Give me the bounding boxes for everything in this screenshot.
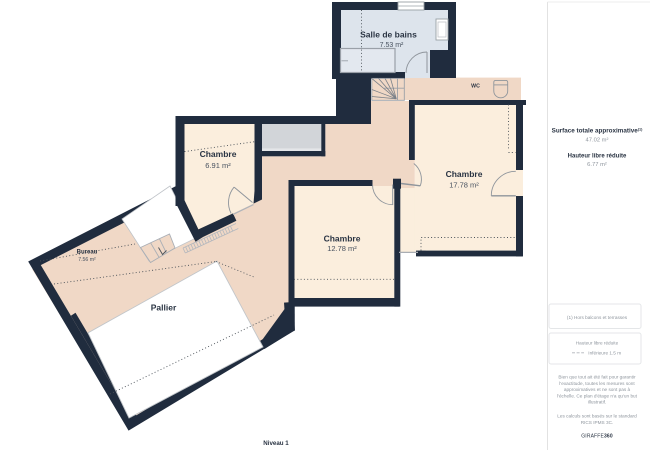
- svg-text:Bien que tout ait été fait pou: Bien que tout ait été fait pour garantir: [558, 375, 636, 380]
- svg-text:approximatives et ne sont pas: approximatives et ne sont pas à: [564, 387, 631, 392]
- svg-text:17.78 m²: 17.78 m²: [449, 181, 479, 190]
- svg-text:l'exactitude, toutes les mesur: l'exactitude, toutes les mesures sont: [559, 381, 635, 386]
- svg-text:Les calculs sont basés sur le: Les calculs sont basés sur le standard: [557, 414, 637, 419]
- svg-text:Pallier: Pallier: [151, 303, 177, 313]
- svg-text:GIRAFFE360: GIRAFFE360: [581, 434, 613, 440]
- svg-text:Hauteur libre réduite: Hauteur libre réduite: [576, 340, 619, 345]
- svg-text:Niveau 1: Niveau 1: [263, 440, 289, 447]
- svg-text:Bureau: Bureau: [77, 249, 98, 255]
- svg-text:illustratif.: illustratif.: [588, 400, 607, 405]
- svg-text:WC: WC: [471, 84, 480, 90]
- svg-text:Chambre: Chambre: [324, 234, 361, 244]
- svg-text:Salle de bains: Salle de bains: [360, 30, 417, 40]
- svg-text:Chambre: Chambre: [200, 149, 237, 159]
- svg-text:12.78 m²: 12.78 m²: [327, 244, 357, 253]
- svg-text:47.02 m²: 47.02 m²: [586, 138, 609, 144]
- svg-text:(1) Hors balcons et terrasses: (1) Hors balcons et terrasses: [567, 315, 628, 320]
- svg-text:7.53 m²: 7.53 m²: [380, 42, 404, 49]
- svg-text:l'échelle. Ce plan d'étage n'a: l'échelle. Ce plan d'étage n'a qu'un but: [557, 393, 638, 398]
- svg-text:Hauteur libre réduite: Hauteur libre réduite: [568, 153, 627, 159]
- svg-text:Surface totale approximative(1: Surface totale approximative(1): [552, 128, 643, 135]
- svg-text:Inférieure 1.5 m: Inférieure 1.5 m: [588, 351, 621, 356]
- svg-text:6.77 m²: 6.77 m²: [587, 162, 607, 168]
- svg-text:6.91 m²: 6.91 m²: [205, 161, 231, 170]
- svg-text:RICS IPMS 3C.: RICS IPMS 3C.: [581, 420, 614, 425]
- svg-text:7.56 m²: 7.56 m²: [78, 257, 96, 263]
- svg-text:Chambre: Chambre: [446, 169, 483, 179]
